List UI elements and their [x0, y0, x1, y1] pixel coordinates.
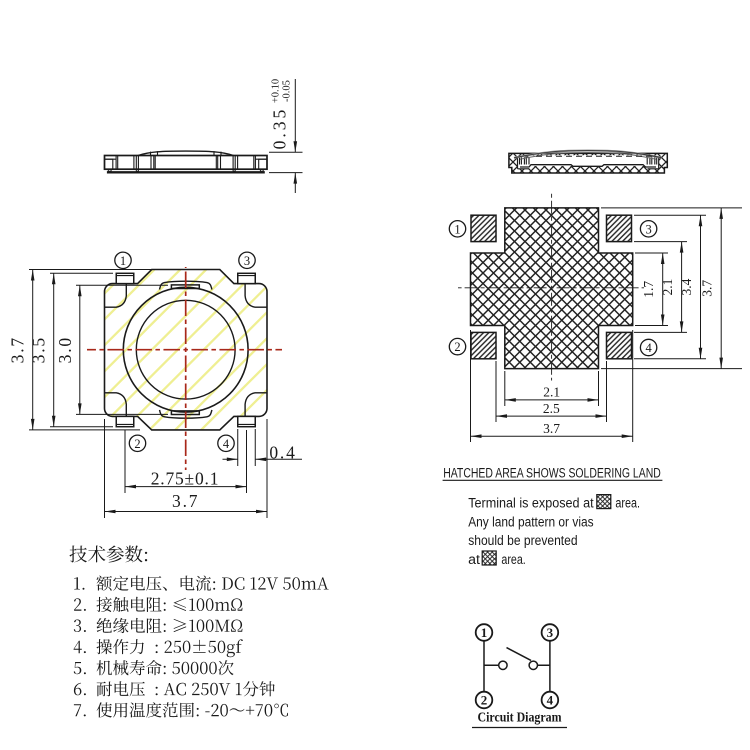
svg-text:0.4: 0.4: [269, 442, 296, 462]
svg-text:should be prevented: should be prevented: [468, 533, 577, 548]
svg-text:area.: area.: [615, 496, 640, 511]
svg-text:1: 1: [454, 222, 460, 236]
svg-text:3.7: 3.7: [8, 336, 28, 363]
svg-text:2: 2: [481, 693, 488, 708]
svg-text:2.5: 2.5: [543, 401, 560, 416]
svg-text:-0.05: -0.05: [282, 80, 293, 102]
svg-text:2: 2: [454, 340, 460, 354]
svg-text:2.1: 2.1: [660, 279, 675, 296]
svg-text:4: 4: [645, 341, 652, 355]
svg-text:3: 3: [547, 625, 554, 640]
svg-text:3.7: 3.7: [543, 421, 560, 436]
svg-text:3.5: 3.5: [29, 336, 49, 363]
svg-text:0.35: 0.35: [270, 107, 290, 150]
svg-text:Any land pattern or vias: Any land pattern or vias: [468, 514, 594, 529]
svg-text:+0.10: +0.10: [271, 79, 282, 103]
svg-text:4: 4: [223, 437, 230, 451]
svg-text:1: 1: [481, 625, 488, 640]
svg-text:2: 2: [134, 437, 140, 451]
svg-text:3: 3: [645, 222, 651, 236]
svg-text:Circuit Diagram: Circuit Diagram: [478, 710, 563, 725]
svg-text:2.75±0.1: 2.75±0.1: [151, 468, 220, 488]
svg-text:1.7: 1.7: [641, 281, 656, 298]
svg-text:Terminal is exposed at: Terminal is exposed at: [468, 496, 594, 511]
svg-text:3.7: 3.7: [172, 491, 199, 511]
svg-text:at: at: [468, 552, 480, 567]
svg-text:4: 4: [547, 693, 554, 708]
svg-text:3.0: 3.0: [55, 336, 75, 363]
svg-text:1: 1: [120, 254, 126, 268]
svg-text:2.1: 2.1: [543, 385, 560, 400]
svg-text:3: 3: [244, 254, 250, 268]
svg-text:3.7: 3.7: [700, 280, 715, 297]
svg-text:3.4: 3.4: [679, 278, 694, 295]
svg-text:area.: area.: [501, 552, 525, 567]
svg-text:HATCHED AREA SHOWS SOLDERING L: HATCHED AREA SHOWS SOLDERING LAND: [443, 465, 661, 480]
